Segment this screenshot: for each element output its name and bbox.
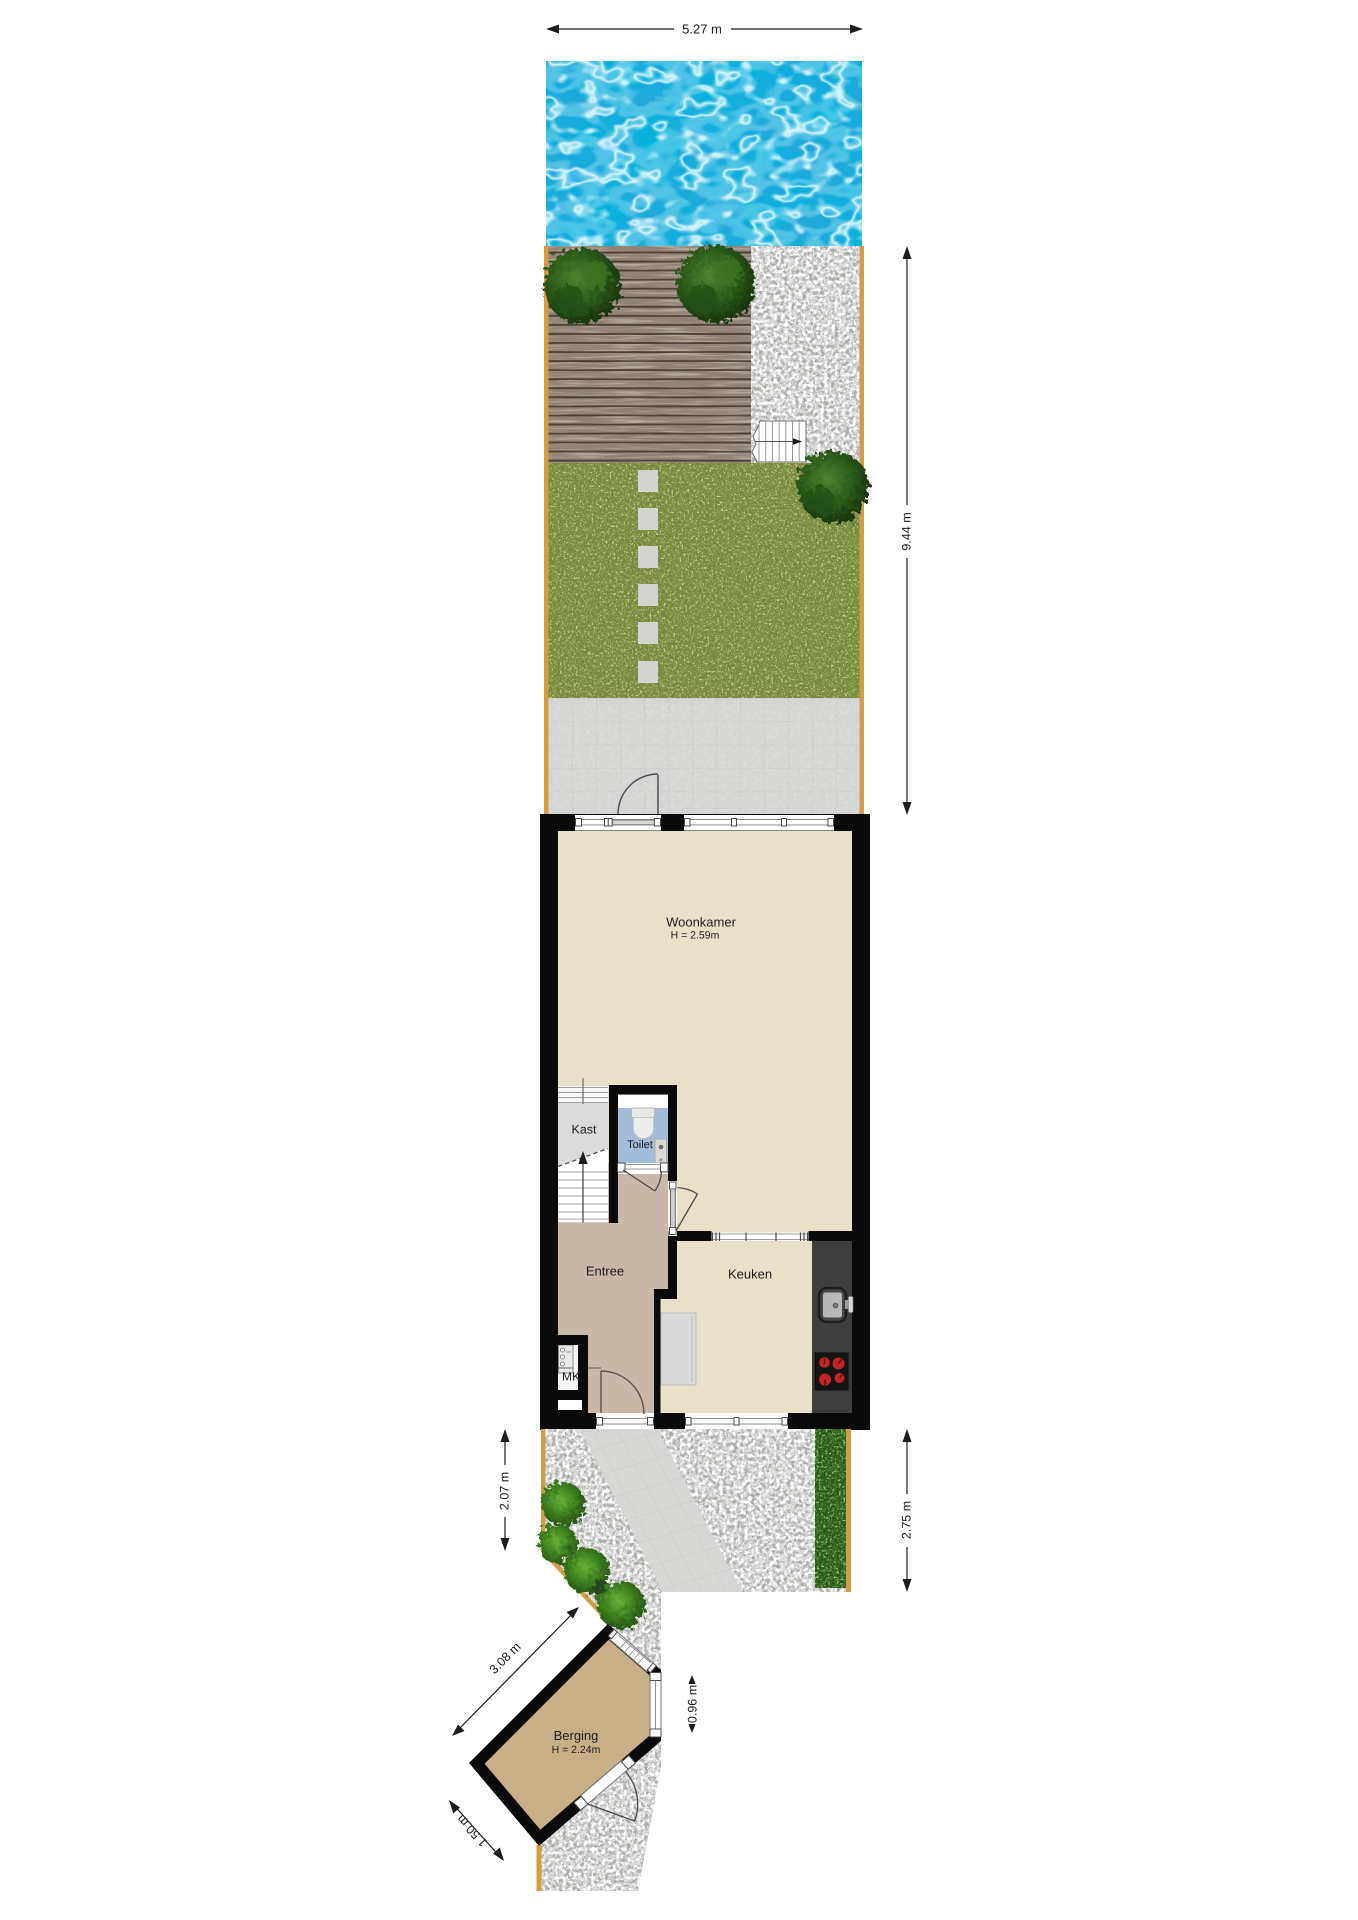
svg-text:Toilet: Toilet [627, 1139, 653, 1151]
svg-text:Entree: Entree [586, 1264, 624, 1279]
svg-text:Woonkamer: Woonkamer [666, 915, 737, 930]
svg-text:0.96 m: 0.96 m [686, 1685, 700, 1723]
svg-text:3.08 m: 3.08 m [487, 1640, 524, 1677]
svg-text:9.44 m: 9.44 m [900, 512, 914, 550]
svg-text:1.50 m: 1.50 m [454, 1812, 490, 1849]
svg-text:MK: MK [562, 1370, 580, 1384]
svg-text:Berging: Berging [554, 1728, 599, 1743]
svg-text:5.27 m: 5.27 m [682, 22, 722, 37]
svg-text:Kast: Kast [571, 1123, 597, 1137]
svg-text:H = 2.59m: H = 2.59m [671, 930, 720, 942]
svg-text:2.07 m: 2.07 m [498, 1472, 512, 1510]
svg-text:Keuken: Keuken [728, 1267, 772, 1282]
svg-text:2.75 m: 2.75 m [900, 1501, 914, 1539]
svg-text:H = 2.24m: H = 2.24m [552, 1744, 601, 1756]
